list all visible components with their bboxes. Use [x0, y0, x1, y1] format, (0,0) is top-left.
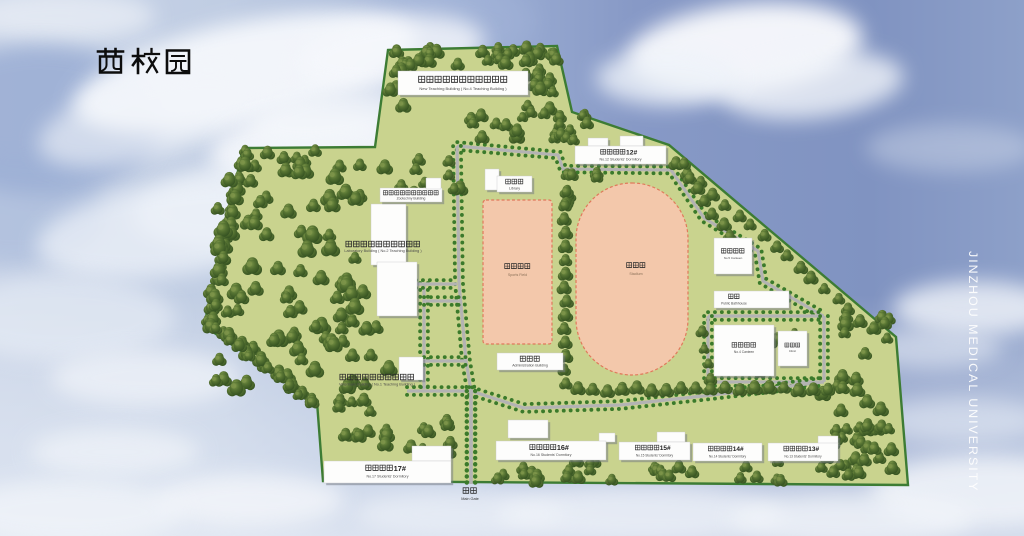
svg-text:Sports Field: Sports Field	[508, 273, 527, 277]
svg-text:13#: 13#	[808, 446, 819, 453]
svg-text:Zootechny Building: Zootechny Building	[397, 197, 426, 201]
svg-text:Clinic: Clinic	[789, 349, 797, 353]
svg-text:Laboratory Building ( No.2 Tea: Laboratory Building ( No.2 Teaching Buil…	[344, 249, 422, 253]
svg-text:New Teaching Building ( No.4 T: New Teaching Building ( No.4 Teaching Bu…	[419, 86, 507, 91]
svg-text:12#: 12#	[626, 150, 637, 157]
svg-text:No.16 Students' Dormitory: No.16 Students' Dormitory	[531, 453, 572, 457]
svg-text:Veterinary Building ( No.1 Tea: Veterinary Building ( No.1 Teaching Buil…	[339, 383, 416, 387]
svg-text:No.5 Canteen: No.5 Canteen	[724, 256, 743, 260]
svg-text:16#: 16#	[557, 443, 569, 452]
svg-text:No.17 Students' Dormitory: No.17 Students' Dormitory	[366, 475, 408, 479]
svg-text:Library: Library	[509, 187, 520, 191]
svg-text:Main Gate: Main Gate	[461, 497, 479, 501]
svg-text:Stadium: Stadium	[629, 272, 642, 276]
svg-text:No.14 Students' Dormitory: No.14 Students' Dormitory	[709, 455, 747, 459]
svg-text:14#: 14#	[733, 446, 744, 453]
svg-text:No.4 Canteen: No.4 Canteen	[734, 350, 755, 354]
svg-text:Administration Building: Administration Building	[512, 364, 548, 368]
svg-text:JINZHOU MEDICAL UNIVERSITY: JINZHOU MEDICAL UNIVERSITY	[966, 251, 980, 493]
svg-text:Public Bathhouse: Public Bathhouse	[721, 302, 747, 306]
svg-text:15#: 15#	[660, 445, 671, 452]
svg-text:No.13 Students' Dormitory: No.13 Students' Dormitory	[784, 455, 822, 459]
svg-text:No.15 Students' Dormitory: No.15 Students' Dormitory	[636, 454, 674, 458]
svg-text:17#: 17#	[394, 464, 406, 473]
svg-text:No.12 Students' Dormitory: No.12 Students' Dormitory	[599, 158, 641, 162]
